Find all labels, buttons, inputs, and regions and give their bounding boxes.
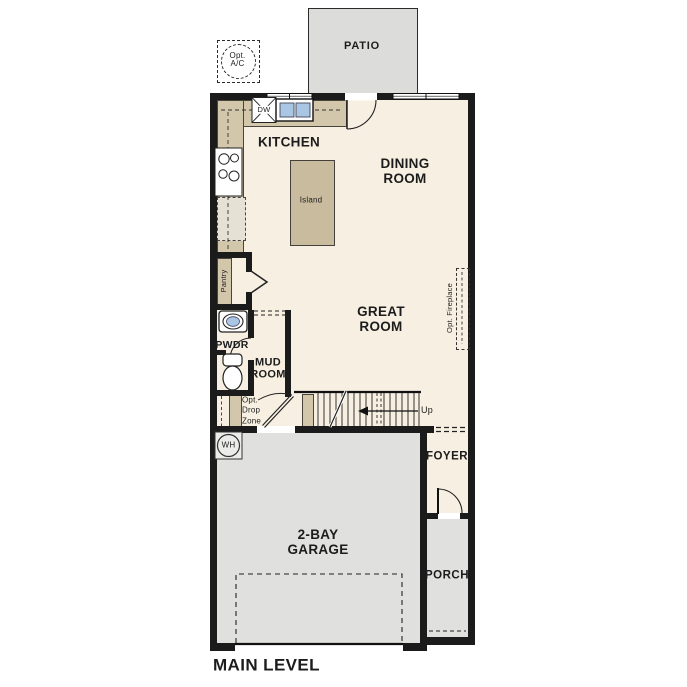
wall-porch-top-right xyxy=(460,513,475,519)
wall-garage-top-right xyxy=(295,426,434,433)
pantry-label: Pantry xyxy=(219,270,227,293)
opt-drop-zone-label: Opt. Drop Zone xyxy=(242,395,272,426)
wall-pantry-powder xyxy=(210,304,252,310)
wall-garage-left xyxy=(210,426,217,651)
great-room-label: GREAT ROOM xyxy=(351,304,411,334)
optional-fireplace-box xyxy=(456,268,470,350)
wall-right xyxy=(468,93,475,645)
opt-fireplace-label: Opt. Fireplace xyxy=(446,283,454,333)
drop-zone-bench xyxy=(229,394,242,428)
opt-ac-label: Opt. A/C xyxy=(225,52,251,70)
optional-refrigerator-box xyxy=(217,197,246,241)
wall-pantry-stub-top xyxy=(246,252,252,272)
wall-mudroom-right xyxy=(285,310,291,397)
wall-garage-bottom-left xyxy=(210,643,235,651)
wall-porch-bottom xyxy=(420,637,475,645)
kitchen-label: KITCHEN xyxy=(258,134,320,149)
level-title: MAIN LEVEL xyxy=(213,655,320,674)
dining-room-label: DINING ROOM xyxy=(373,156,437,186)
wall-top xyxy=(210,93,475,100)
foyer-label: FOYER xyxy=(426,451,468,464)
island-label: Island xyxy=(300,197,323,206)
floor-plan: PATIO Opt. A/C KITCHEN DINING ROOM Islan… xyxy=(0,0,687,687)
up-label: Up xyxy=(421,405,433,415)
garage-label: 2-BAY GARAGE xyxy=(278,527,358,557)
wall-powder-right-top xyxy=(248,310,254,338)
wall-porch-top-left xyxy=(420,513,438,519)
wall-garage-right xyxy=(420,433,427,640)
dishwasher-label: DW xyxy=(257,106,272,114)
porch-label: PORCH xyxy=(425,570,469,583)
wall-left xyxy=(210,93,217,433)
patio-label: PATIO xyxy=(344,40,380,52)
mud-room-label: MUD ROOM xyxy=(245,357,291,382)
powder-label: PWDR xyxy=(215,340,248,352)
stair-half-wall xyxy=(302,394,314,428)
water-heater-label: WH xyxy=(222,441,236,450)
wall-garage-top-left xyxy=(210,426,257,433)
foyer-area xyxy=(425,431,470,515)
